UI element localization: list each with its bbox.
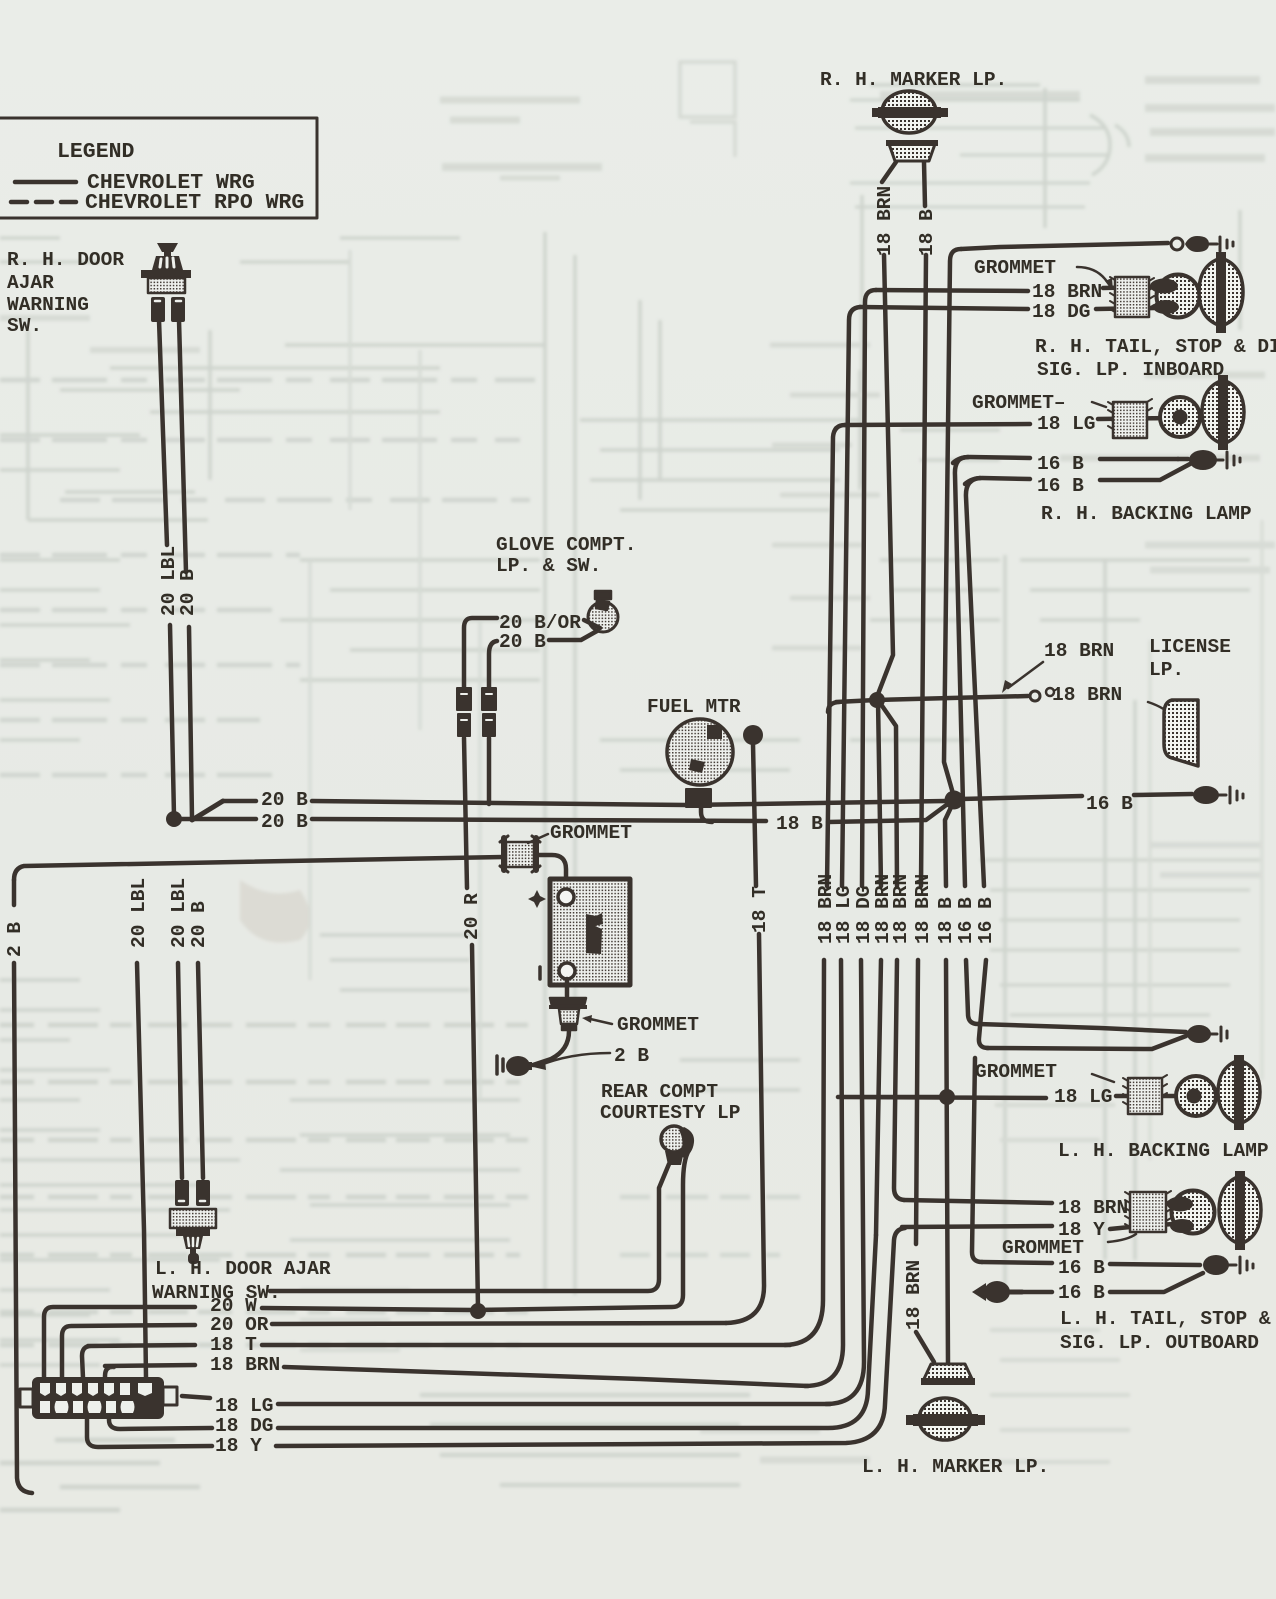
svg-text:16 B: 16 B xyxy=(975,897,997,944)
svg-text:18 BRN: 18 BRN xyxy=(1044,640,1114,662)
svg-text:LICENSE: LICENSE xyxy=(1149,636,1231,658)
svg-text:20 LBL: 20 LBL xyxy=(168,878,190,948)
svg-text:2 B: 2 B xyxy=(4,922,26,957)
svg-text:LP. & SW.: LP. & SW. xyxy=(496,555,601,577)
svg-text:18 BRN: 18 BRN xyxy=(903,1260,925,1330)
svg-text:LP.: LP. xyxy=(1149,659,1184,681)
svg-text:GROMMET: GROMMET xyxy=(617,1014,699,1036)
svg-text:18 LG: 18 LG xyxy=(1037,413,1096,435)
svg-text:L. H. BACKING LAMP: L. H. BACKING LAMP xyxy=(1058,1140,1269,1162)
svg-text:20 B: 20 B xyxy=(177,569,199,616)
svg-text:16 B: 16 B xyxy=(955,897,977,944)
svg-text:GROMMET: GROMMET xyxy=(975,1061,1057,1083)
svg-text:SW.: SW. xyxy=(7,315,42,337)
svg-text:20 B: 20 B xyxy=(188,901,210,948)
svg-text:R. H. MARKER LP.: R. H. MARKER LP. xyxy=(820,69,1007,91)
svg-text:20 R: 20 R xyxy=(461,893,483,940)
svg-text:18 LG: 18 LG xyxy=(1054,1086,1113,1108)
svg-text:L. H. DOOR AJAR: L. H. DOOR AJAR xyxy=(155,1258,331,1280)
svg-text:18 DG: 18 DG xyxy=(1032,301,1091,323)
svg-text:L. H. MARKER LP.: L. H. MARKER LP. xyxy=(862,1456,1049,1478)
svg-text:CHEVROLET RPO WRG: CHEVROLET RPO WRG xyxy=(85,191,304,215)
svg-text:GLOVE COMPT.: GLOVE COMPT. xyxy=(496,534,636,556)
svg-text:18 Y: 18 Y xyxy=(215,1435,262,1457)
svg-text:R. H. TAIL, STOP & DIR.: R. H. TAIL, STOP & DIR. xyxy=(1035,336,1276,358)
svg-text:16 B: 16 B xyxy=(1086,793,1133,815)
svg-text:GROMMET: GROMMET xyxy=(550,822,632,844)
svg-text:18 T: 18 T xyxy=(749,886,771,933)
svg-text:WARNING: WARNING xyxy=(7,294,89,316)
svg-text:16 B: 16 B xyxy=(1058,1257,1105,1279)
svg-text:18 BRN: 18 BRN xyxy=(210,1354,280,1376)
svg-text:18 LG: 18 LG xyxy=(833,885,855,944)
svg-text:AJAR: AJAR xyxy=(7,272,54,294)
svg-text:16 B: 16 B xyxy=(1058,1282,1105,1304)
svg-text:18 BRN: 18 BRN xyxy=(890,874,912,944)
svg-text:SIG. LP. OUTBOARD: SIG. LP. OUTBOARD xyxy=(1060,1332,1259,1354)
svg-text:FUEL MTR: FUEL MTR xyxy=(647,696,741,718)
svg-text:20 B: 20 B xyxy=(261,811,308,833)
svg-text:18 B: 18 B xyxy=(916,209,938,256)
svg-text:R. H. DOOR: R. H. DOOR xyxy=(7,249,124,271)
svg-text:20 B: 20 B xyxy=(261,789,308,811)
svg-text:18 BRN: 18 BRN xyxy=(874,186,896,256)
svg-text:GROMMET: GROMMET xyxy=(974,257,1056,279)
svg-text:L. H. TAIL, STOP & DI: L. H. TAIL, STOP & DI xyxy=(1060,1308,1276,1330)
svg-text:REAR COMPT: REAR COMPT xyxy=(601,1081,718,1103)
svg-text:18 BRN: 18 BRN xyxy=(1058,1197,1128,1219)
svg-text:20 LBL: 20 LBL xyxy=(128,878,150,948)
svg-text:LEGEND: LEGEND xyxy=(57,140,135,164)
svg-text:GROMMET–: GROMMET– xyxy=(972,392,1066,414)
svg-text:18 BRN: 18 BRN xyxy=(1052,684,1122,706)
svg-text:18 DG: 18 DG xyxy=(215,1415,274,1437)
svg-text:COURTESTY LP: COURTESTY LP xyxy=(600,1102,740,1124)
svg-text:18 BRN: 18 BRN xyxy=(912,874,934,944)
svg-text:18 B: 18 B xyxy=(776,813,823,835)
svg-text:20 OR: 20 OR xyxy=(210,1314,269,1336)
svg-text:GROMMET: GROMMET xyxy=(1002,1237,1084,1259)
svg-text:18 BRN: 18 BRN xyxy=(1032,281,1102,303)
svg-text:18 B: 18 B xyxy=(935,897,957,944)
svg-text:18 T: 18 T xyxy=(210,1334,257,1356)
svg-text:2 B: 2 B xyxy=(614,1045,649,1067)
svg-text:16 B: 16 B xyxy=(1037,453,1084,475)
svg-text:20 B: 20 B xyxy=(499,631,546,653)
svg-text:16 B: 16 B xyxy=(1037,475,1084,497)
svg-text:18 LG: 18 LG xyxy=(215,1395,274,1417)
svg-text:R. H. BACKING LAMP: R. H. BACKING LAMP xyxy=(1041,503,1252,525)
svg-text:SIG. LP. INBOARD: SIG. LP. INBOARD xyxy=(1037,359,1224,381)
